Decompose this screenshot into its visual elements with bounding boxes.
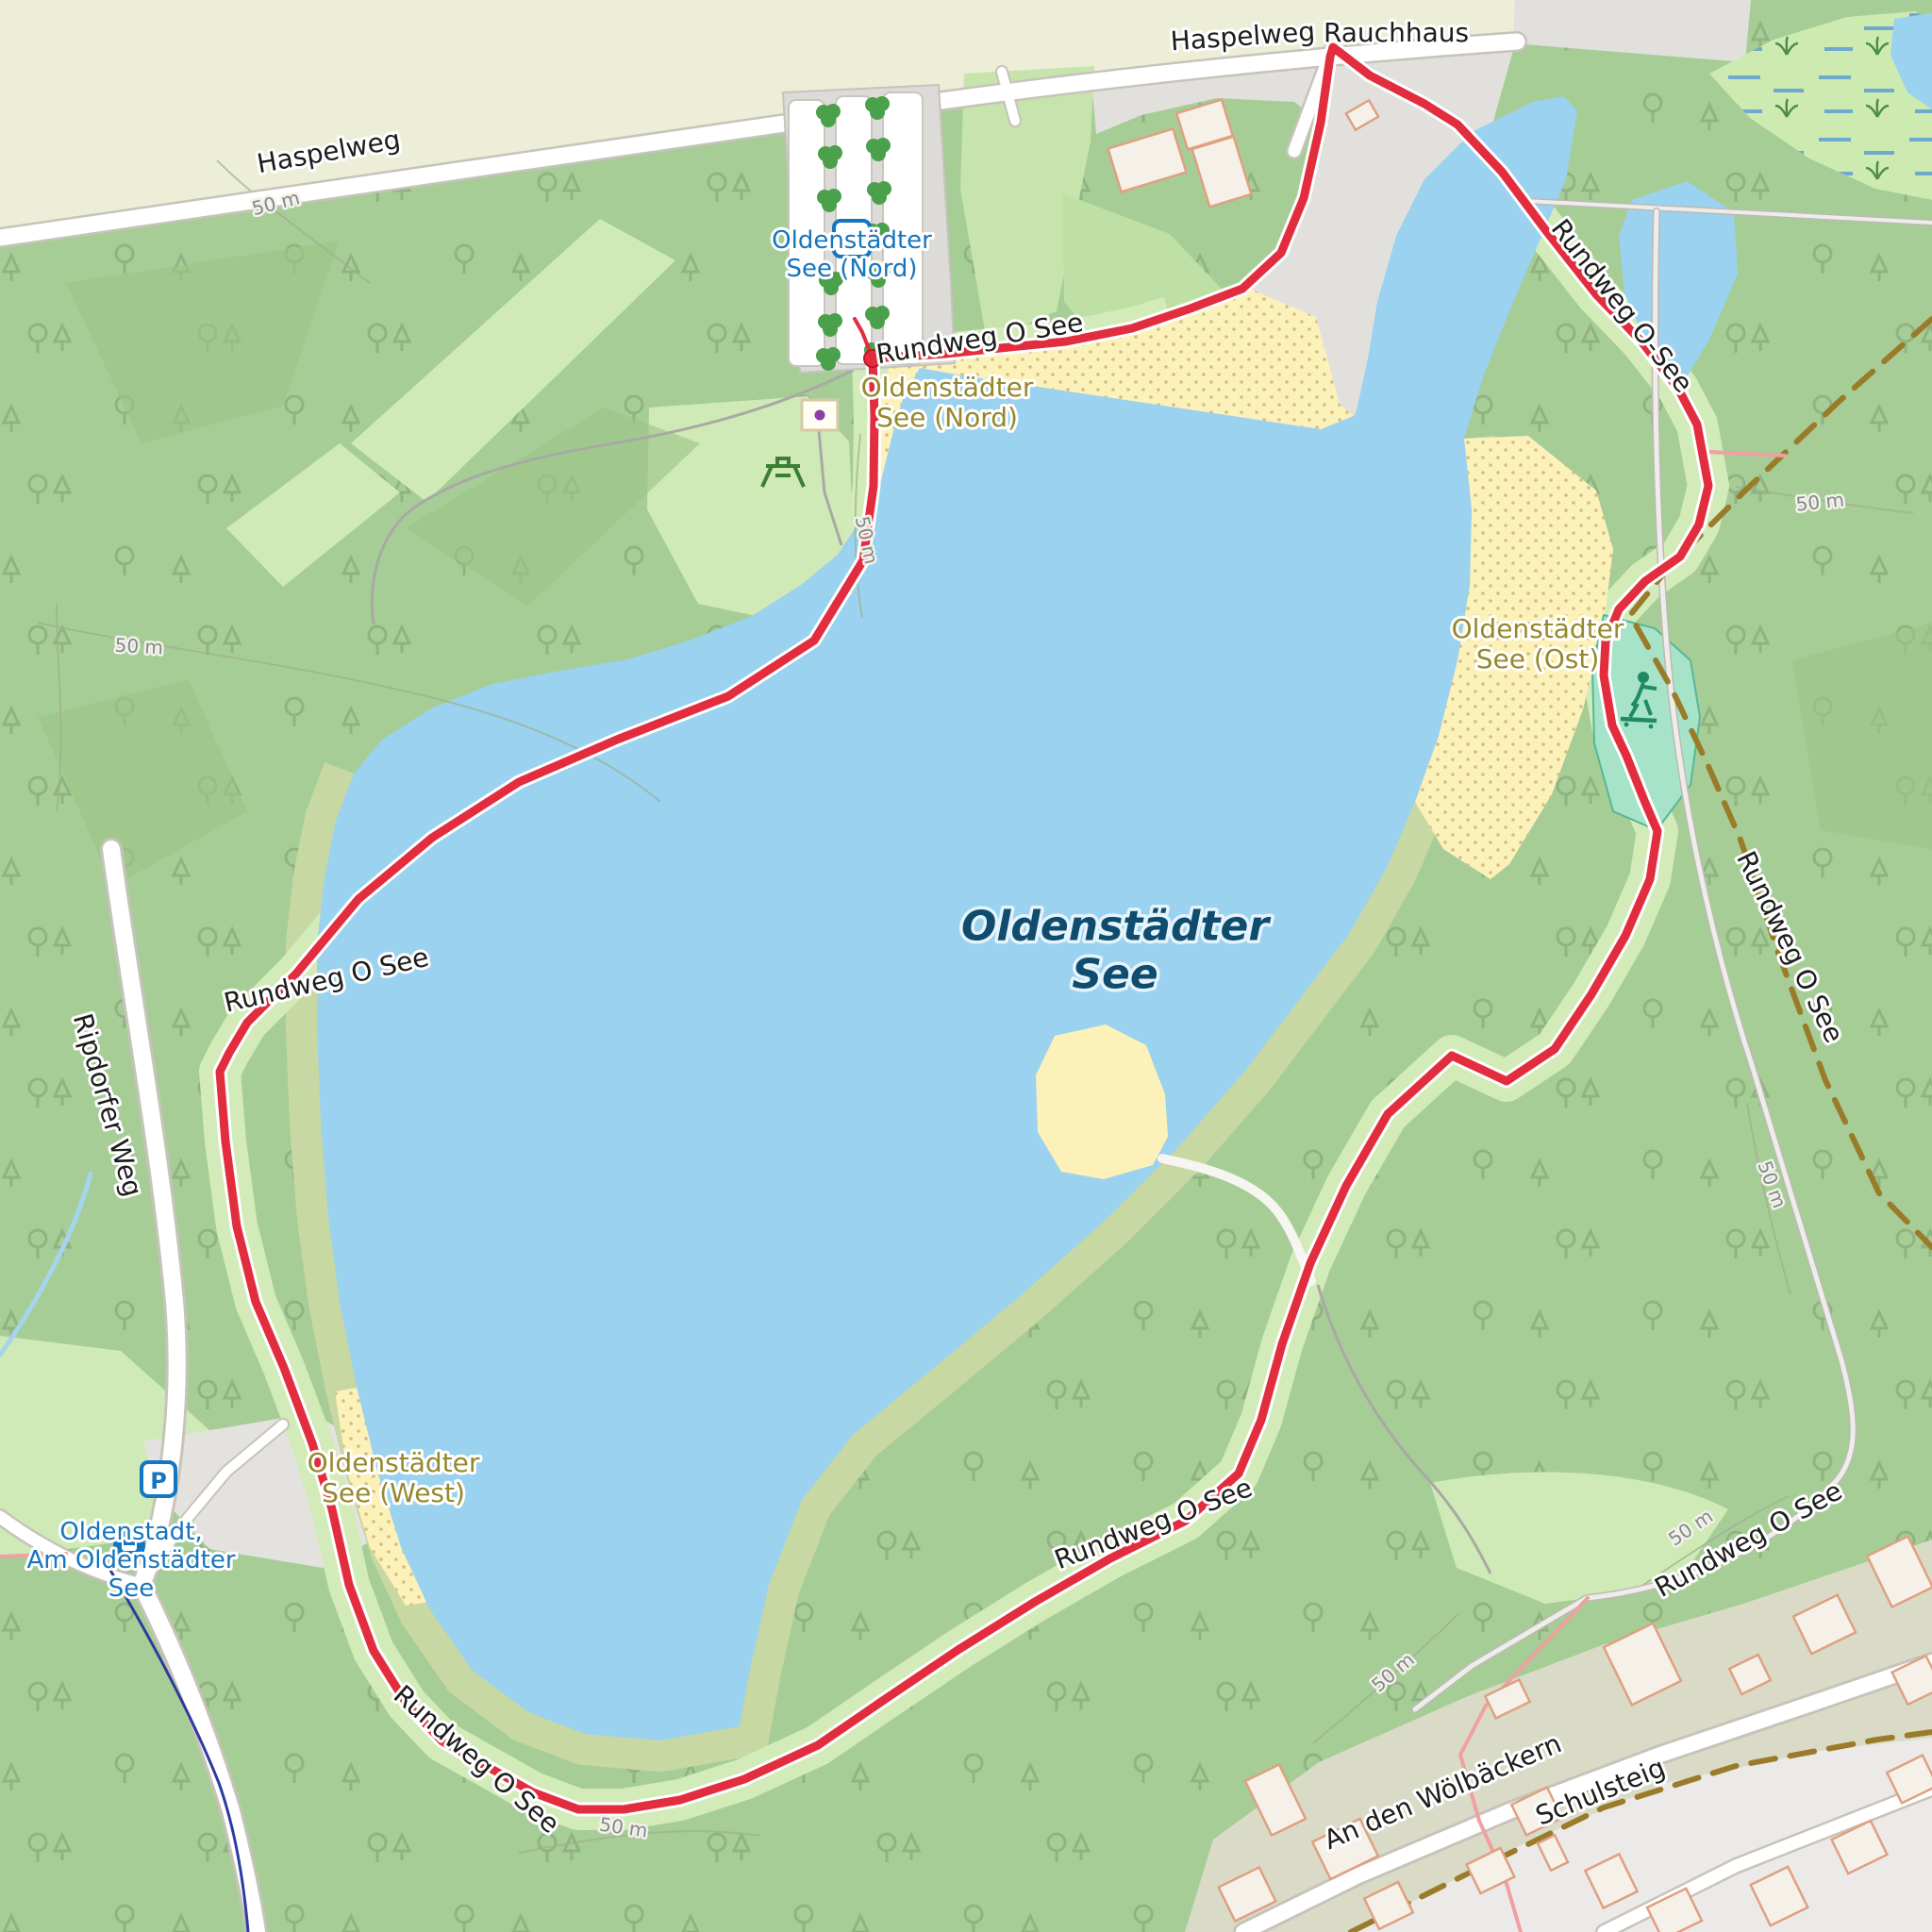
map-label-beach-nord-label: OldenstädterSee (Nord) bbox=[861, 372, 1034, 433]
map-label-parking-nord-label: OldenstädterSee (Nord) bbox=[772, 226, 932, 283]
map-label-beach-west-label: OldenstädterSee (West) bbox=[308, 1447, 480, 1508]
artwork-icon bbox=[802, 400, 838, 430]
map-label-rauchhaus: Rauchhaus bbox=[1324, 17, 1469, 48]
map-label-beach-ost-label: OldenstädterSee (Ost) bbox=[1452, 613, 1624, 675]
parking-icon-west: P bbox=[142, 1462, 175, 1496]
map-canvas[interactable]: P P HaspelwegHaspelwegRauchhausRundweg bbox=[0, 0, 1932, 1932]
parking-icon-west-letter: P bbox=[150, 1468, 167, 1494]
map-label-contour-w: 50 m bbox=[114, 634, 163, 659]
map-container: P P HaspelwegHaspelwegRauchhausRundweg bbox=[0, 0, 1932, 1932]
